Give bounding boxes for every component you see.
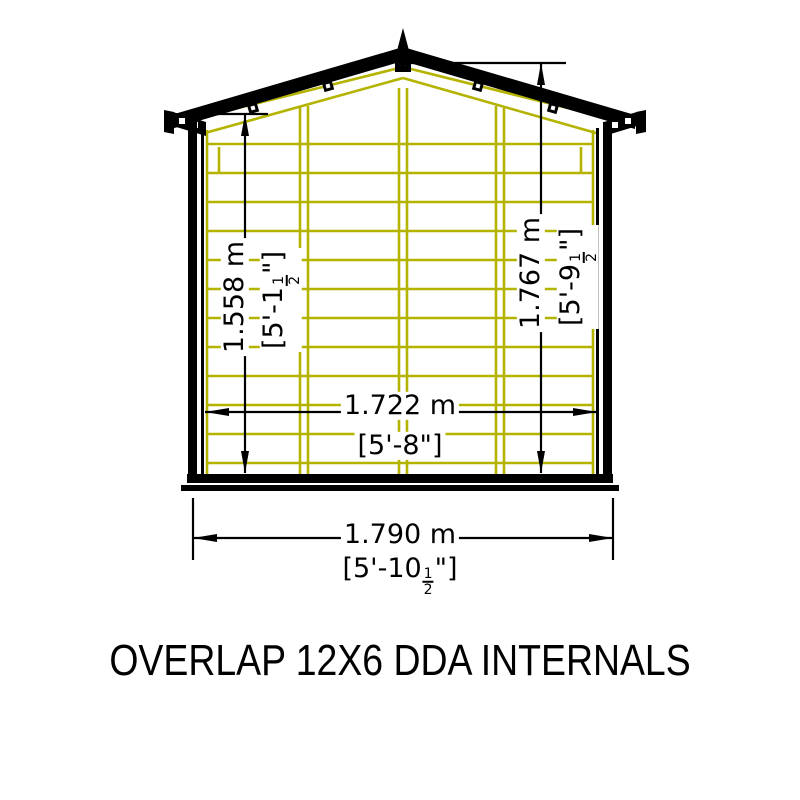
fraction: 12: [272, 275, 302, 286]
roof-tip-left: [164, 110, 174, 134]
dim-right-height-imperial: [5'-912"]: [557, 225, 599, 329]
roof-tip-right: [636, 110, 646, 134]
wall-left-inner: [201, 128, 204, 474]
dim-external-width-metric: 1.790 m: [341, 521, 459, 549]
dim-left-height-metric: 1.558 m: [221, 238, 249, 356]
floor-base: [181, 485, 619, 491]
drawing-title: OVERLAP 12X6 DDA INTERNALS: [109, 636, 690, 686]
dimension-arrows: [193, 63, 613, 542]
diagram-canvas: 1.558 m [5'-112"] 1.767 m [5'-912"] 1.72…: [0, 0, 800, 800]
dim-internal-width-imperial: [5'-8"]: [354, 432, 445, 460]
dim-external-width-imperial: [5'-1012"]: [339, 555, 460, 597]
roof: [164, 28, 646, 136]
wall-left-outer: [188, 122, 197, 474]
fraction: 12: [569, 252, 599, 263]
dim-right-height-metric: 1.767 m: [517, 214, 545, 332]
floor: [181, 474, 619, 491]
dim-left-height-imperial: [5'-112"]: [260, 248, 302, 352]
wall-right-outer: [603, 122, 612, 474]
fraction: 12: [423, 567, 434, 597]
dim-internal-width-metric: 1.722 m: [341, 392, 459, 420]
floor-deck: [187, 474, 613, 483]
